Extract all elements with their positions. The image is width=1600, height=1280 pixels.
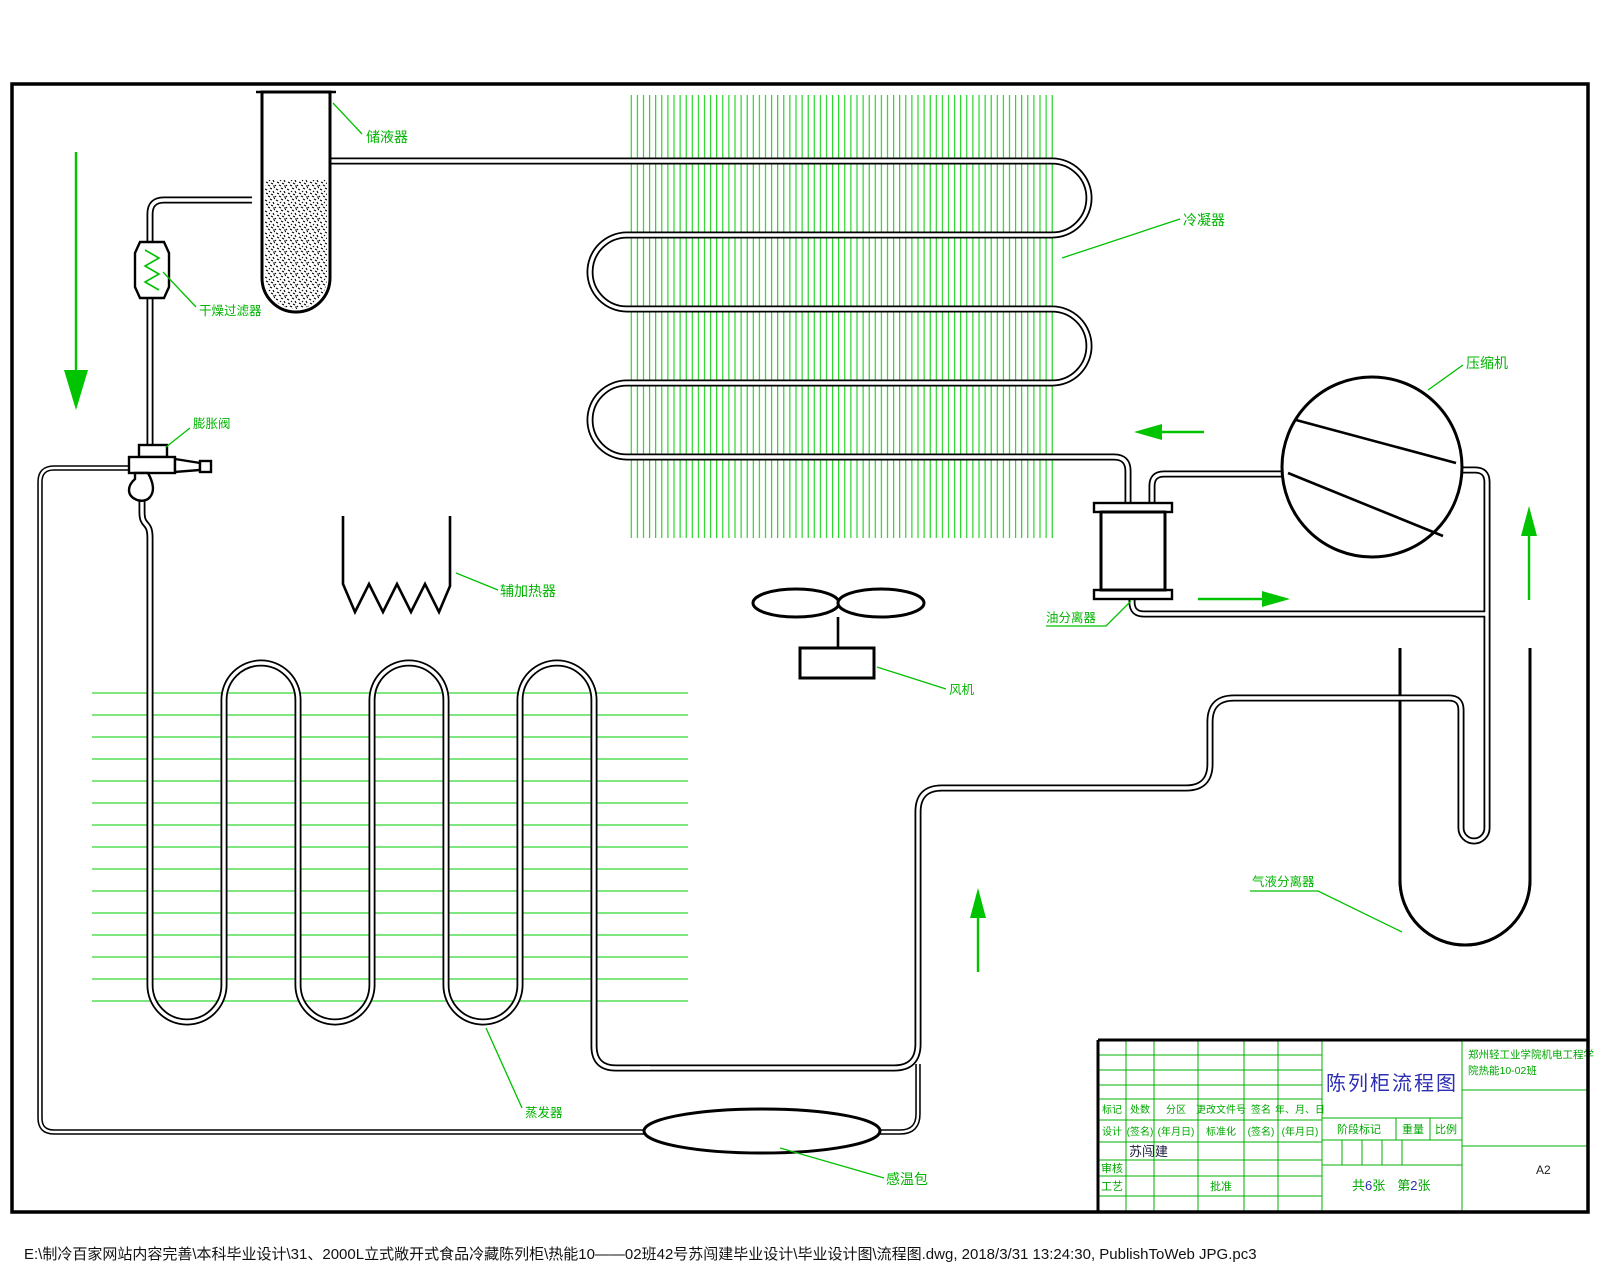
label-condenser: 冷凝器 <box>1183 212 1225 228</box>
sensing-bulb <box>644 1109 880 1153</box>
rev-col-mark: 标记 <box>1102 1104 1122 1116</box>
flow-diagram-svg: 储液器 干燥过滤器 膨胀阀 冷凝器 压缩机 油分离器 风机 辅加热器 蒸发器 感… <box>0 0 1600 1280</box>
compressor <box>1282 377 1462 557</box>
fan-motor <box>800 648 874 678</box>
receiver-liquid-hatch <box>265 180 327 309</box>
school-name-line1: 郑州轻工业学院机电工程学 <box>1468 1048 1594 1061</box>
label-expansion-valve: 膨胀阀 <box>193 417 231 431</box>
drawing-title: 陈列柜流程图 <box>1326 1072 1458 1095</box>
paper-size: A2 <box>1536 1163 1551 1177</box>
flow-arrow-down <box>64 152 88 410</box>
flow-arrow-up-return <box>970 888 986 972</box>
rev-col-sign: 签名 <box>1251 1103 1271 1116</box>
sign-date2: (年月日) <box>1282 1125 1319 1138</box>
label-accumulator: 气液分离器 <box>1252 874 1315 889</box>
weight-label: 重量 <box>1402 1122 1424 1136</box>
label-fan: 风机 <box>949 683 975 697</box>
sign-signature2: (签名) <box>1248 1125 1275 1138</box>
stage-mark-label: 阶段标记 <box>1337 1122 1381 1136</box>
process-label: 工艺 <box>1101 1180 1123 1193</box>
evaporator-fins <box>92 676 688 1010</box>
plot-file-path: E:\制冷百家网站内容完善\本科毕业设计\31、2000L立式敞开式食品冷藏陈列… <box>24 1245 1257 1263</box>
label-aux-heater: 辅加热器 <box>500 583 556 599</box>
fan <box>753 589 924 678</box>
label-evaporator: 蒸发器 <box>525 1105 563 1120</box>
oil-separator <box>1094 503 1172 599</box>
rev-col-date: 年、月、日 <box>1275 1103 1325 1116</box>
label-oil-separator: 油分离器 <box>1046 610 1097 625</box>
flow-arrow-left <box>1134 424 1204 440</box>
flow-arrow-right <box>1198 591 1290 607</box>
flow-arrow-up-suction <box>1521 506 1537 600</box>
expansion-valve <box>129 445 211 501</box>
sign-signature1: (签名) <box>1127 1125 1154 1138</box>
label-filter-drier: 干燥过滤器 <box>199 304 262 318</box>
title-block: 陈列柜流程图 郑州轻工业学院机电工程学 院热能10-02班 标记 处数 分区 更… <box>1098 1040 1594 1212</box>
receiver-vessel <box>256 92 336 312</box>
valve-stem <box>175 459 200 472</box>
sign-standardize: 标准化 <box>1206 1125 1236 1138</box>
filter-drier <box>135 242 169 298</box>
label-sensing-bulb: 感温包 <box>886 1171 928 1187</box>
school-name-line2: 院热能10-02班 <box>1468 1064 1537 1077</box>
accumulator-vessel <box>1400 648 1530 945</box>
rev-col-docno: 更改文件号 <box>1196 1103 1246 1116</box>
sheet-count: 共6张第2张 <box>1352 1178 1431 1193</box>
rev-col-count: 处数 <box>1130 1103 1150 1116</box>
audit-label: 审核 <box>1101 1161 1123 1175</box>
label-receiver: 储液器 <box>366 129 408 145</box>
approve-label: 批准 <box>1210 1179 1232 1193</box>
scale-label: 比例 <box>1435 1122 1457 1136</box>
aux-heater <box>343 516 450 612</box>
label-compressor: 压缩机 <box>1466 355 1508 371</box>
sign-design: 设计 <box>1102 1125 1122 1138</box>
cad-published-drawing: 储液器 干燥过滤器 膨胀阀 冷凝器 压缩机 油分离器 风机 辅加热器 蒸发器 感… <box>0 0 1600 1280</box>
sign-date1: (年月日) <box>1158 1125 1195 1138</box>
designer-name: 苏闯建 <box>1129 1144 1168 1159</box>
rev-col-zone: 分区 <box>1166 1104 1186 1116</box>
valve-bulb-body <box>129 473 153 501</box>
